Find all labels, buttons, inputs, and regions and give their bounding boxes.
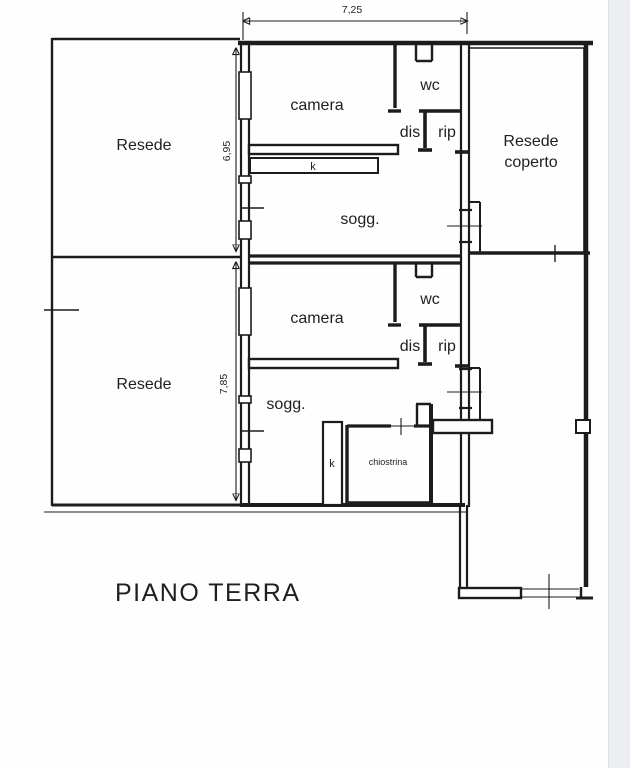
floor-plan-svg: 7,25 6,95 7,85 Resede Resede Resede cope… [0,0,630,768]
room-label-dis-lower: dis [400,338,420,355]
labels: 7,25 6,95 7,85 Resede Resede Resede cope… [115,4,559,607]
plan-title: PIANO TERRA [115,579,301,607]
window [239,396,251,403]
room-label-chiostrina: chiostrina [369,457,408,467]
room-label-resede-lower: Resede [116,376,171,393]
extension-wall-bottom [459,588,521,598]
landing-wall [433,420,492,433]
room-label-sogg-lower: sogg. [266,396,305,413]
window [239,221,251,239]
room-label-wc-upper: wc [419,77,440,94]
chiostrina-step [416,404,431,426]
dimension-label-upper-height: 6,95 [221,141,233,162]
floor-plan-page: 7,25 6,95 7,85 Resede Resede Resede cope… [0,0,630,768]
entry-vestibule [470,368,480,420]
room-label-kitchen-lower: k [329,458,335,470]
room-label-resede-coperto-2: coperto [504,154,557,171]
room-label-kitchen-upper: k [310,161,316,173]
wc-door-jamb [416,44,432,61]
room-label-resede-coperto-1: Resede [503,133,558,150]
camera-wall-bottom [249,359,398,368]
wc-door-jamb [416,263,432,277]
room-label-sogg-upper: sogg. [340,211,379,228]
room-label-rip-upper: rip [438,124,456,141]
unit-lower-walls [249,263,492,507]
dimension-label-lower-height: 7,85 [218,374,230,395]
window [239,176,251,183]
room-label-camera-upper: camera [290,97,343,114]
room-label-resede-upper: Resede [116,137,171,154]
window [239,449,251,462]
room-label-rip-lower: rip [438,338,456,355]
resede-garden-walls [44,38,466,512]
camera-wall-bottom [249,145,398,154]
room-label-dis-upper: dis [400,124,420,141]
window [576,420,590,433]
window [239,288,251,335]
room-label-camera-lower: camera [290,310,343,327]
dimension-label-top: 7,25 [342,4,363,16]
room-label-wc-lower: wc [419,291,440,308]
window [239,72,251,119]
